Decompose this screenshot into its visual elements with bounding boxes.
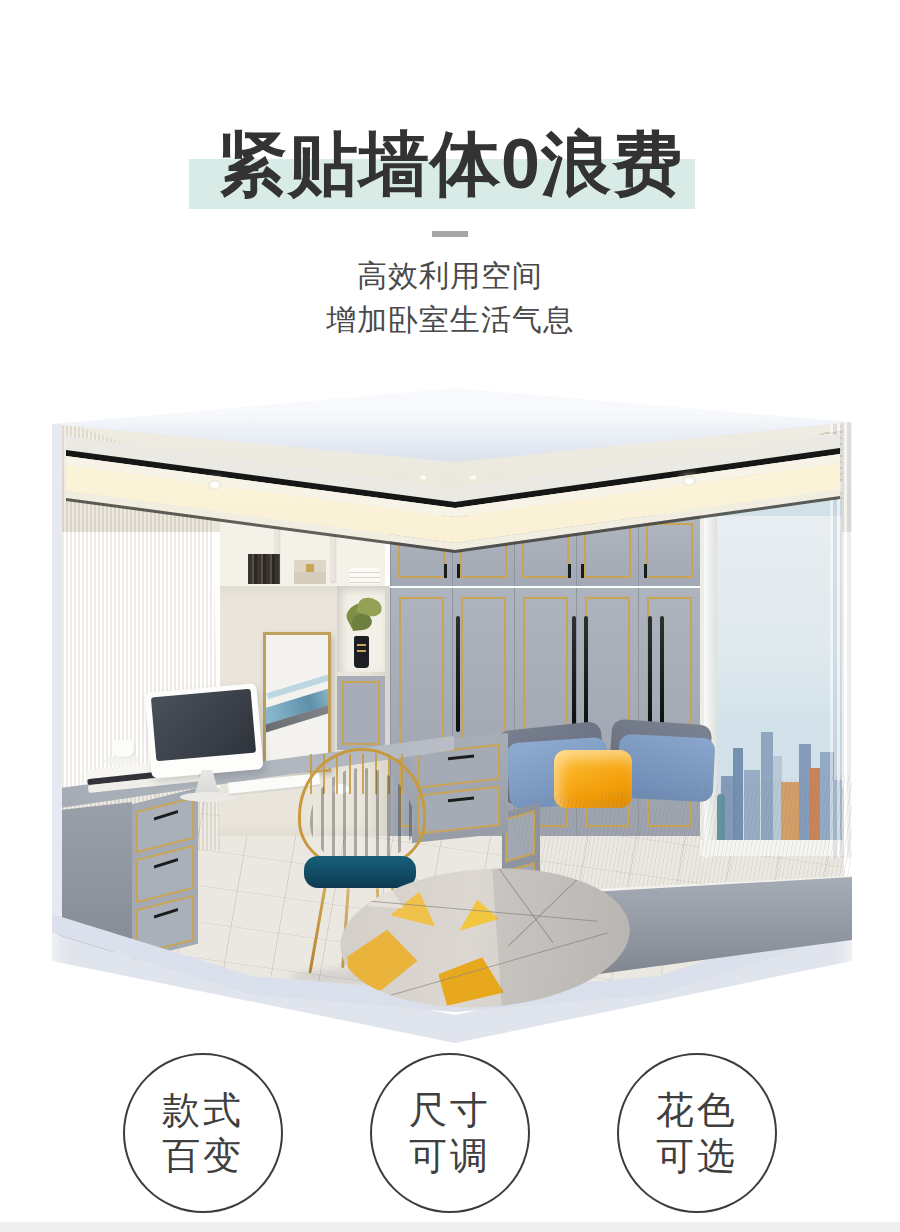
spotlight-icon bbox=[418, 474, 428, 481]
rug-pattern bbox=[437, 956, 504, 1006]
computer-monitor bbox=[144, 683, 263, 778]
wardrobe-handle bbox=[660, 616, 664, 732]
wardrobe-handle bbox=[648, 616, 652, 732]
coffee-cup-icon bbox=[112, 740, 134, 757]
feature-badge-color: 花色 可选 bbox=[617, 1053, 777, 1213]
drawer bbox=[418, 786, 500, 835]
rug-pattern bbox=[457, 898, 499, 931]
cabinet-door bbox=[337, 676, 385, 750]
frame-left-band bbox=[52, 424, 62, 933]
subtitle-line-1: 高效利用空间 bbox=[0, 254, 900, 298]
spotlight-icon bbox=[208, 480, 222, 490]
feature-badge-style: 款式 百变 bbox=[123, 1053, 283, 1213]
product-detail-page: 紧贴墙体0浪费 高效利用空间 增加卧室生活气息 bbox=[0, 0, 900, 1232]
vase-icon bbox=[354, 636, 369, 668]
subtitle: 高效利用空间 增加卧室生活气息 bbox=[0, 254, 900, 342]
bedroom-illustration bbox=[52, 388, 852, 1048]
footer-bar bbox=[0, 1222, 900, 1232]
page-title-wrap: 紧贴墙体0浪费 bbox=[217, 118, 683, 212]
feature-text: 款式 bbox=[162, 1087, 244, 1133]
feature-text: 可选 bbox=[656, 1133, 738, 1179]
desk-pedestal bbox=[132, 788, 198, 960]
subtitle-line-2: 增加卧室生活气息 bbox=[0, 298, 900, 342]
wardrobe-handle bbox=[572, 616, 576, 732]
abstract-painting bbox=[263, 632, 331, 772]
feature-text: 尺寸 bbox=[409, 1087, 491, 1133]
drawer bbox=[136, 845, 194, 903]
feature-text: 百变 bbox=[162, 1133, 244, 1179]
title-divider bbox=[432, 231, 468, 237]
chair-seat bbox=[304, 856, 416, 888]
feature-text: 可调 bbox=[409, 1133, 491, 1179]
wardrobe-handle bbox=[584, 616, 588, 732]
page-title: 紧贴墙体0浪费 bbox=[217, 118, 683, 212]
drawer bbox=[136, 797, 194, 853]
feature-badge-size: 尺寸 可调 bbox=[370, 1053, 530, 1213]
spotlight-icon bbox=[682, 476, 696, 486]
spotlight-icon bbox=[468, 474, 478, 481]
wardrobe-handle bbox=[456, 616, 460, 732]
saucer-icon bbox=[104, 756, 140, 765]
feature-text: 花色 bbox=[656, 1087, 738, 1133]
